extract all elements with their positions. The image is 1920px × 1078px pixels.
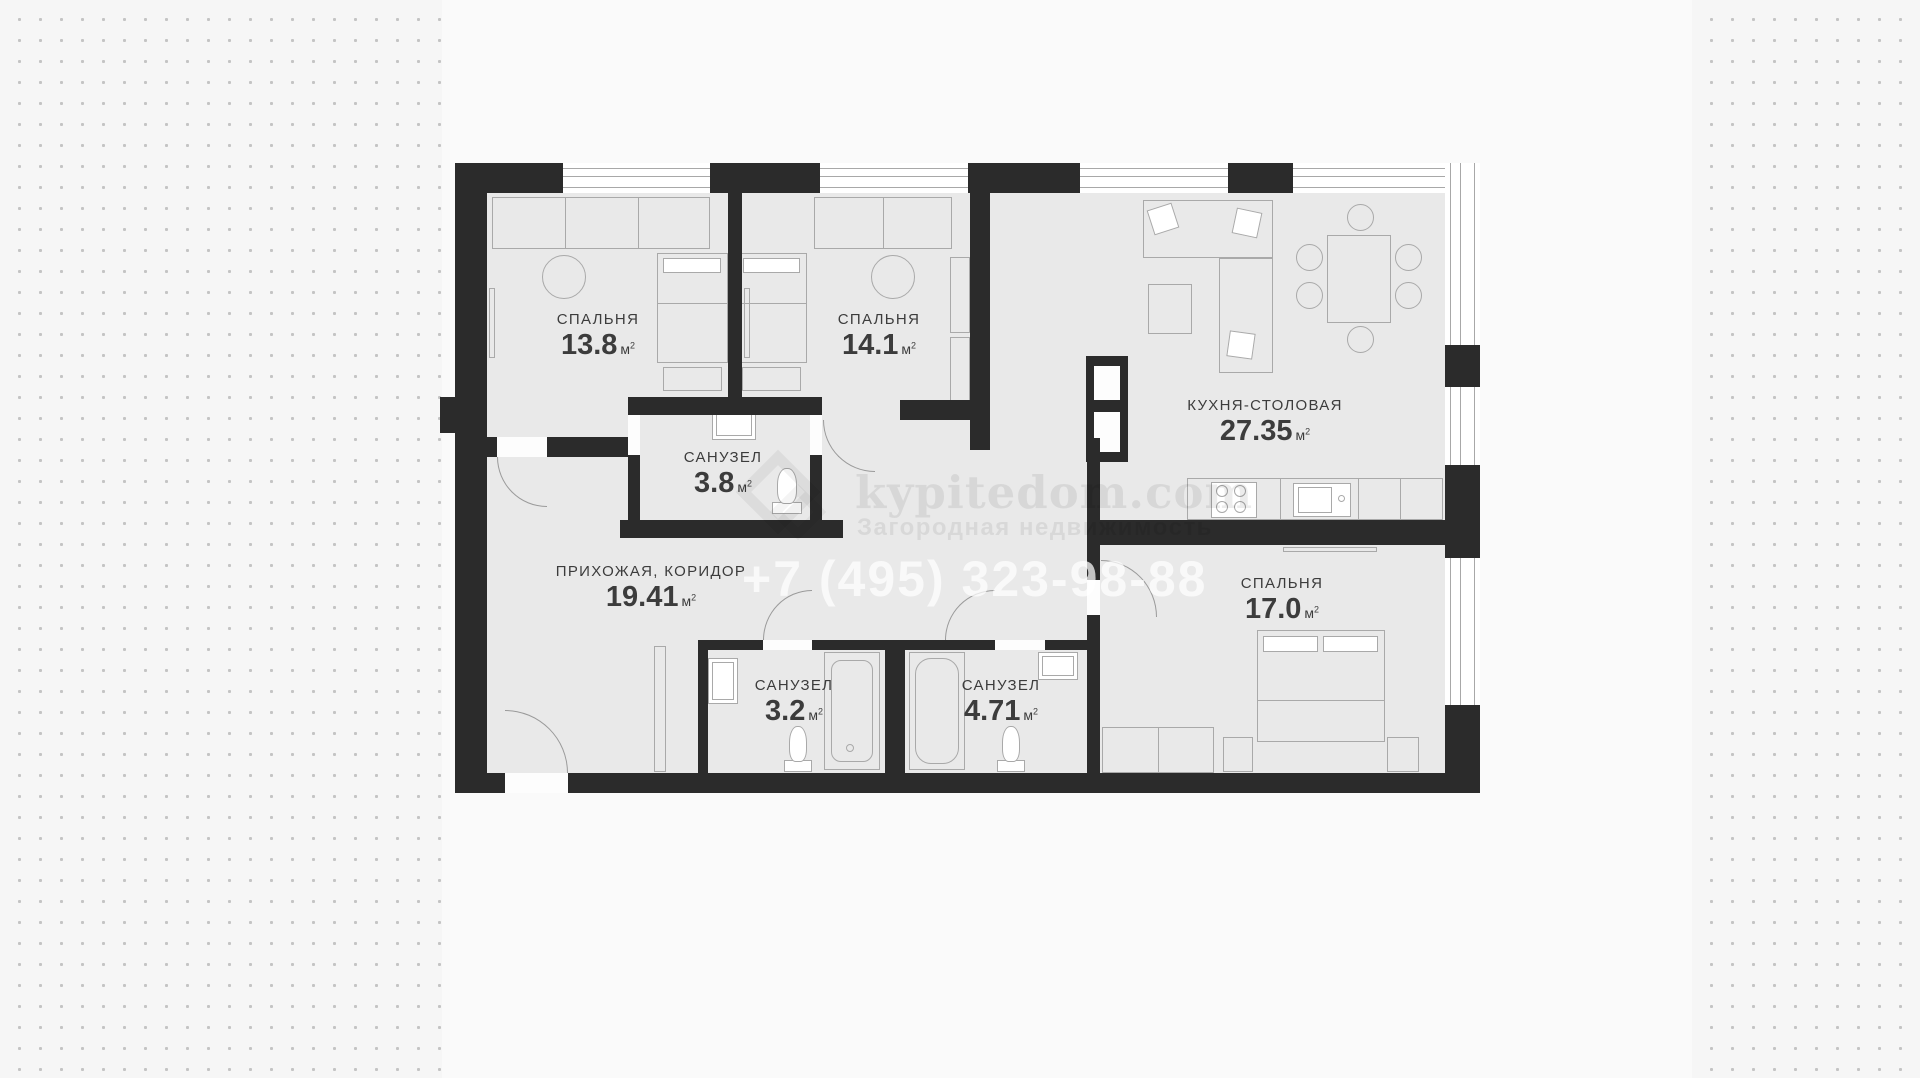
room-area-unit: м2: [808, 707, 823, 723]
wall-segment: [455, 773, 1480, 793]
room-area: 14.1м2: [719, 331, 1039, 360]
counter-divider: [1358, 478, 1359, 520]
wardrobe-divider: [638, 197, 639, 249]
pillow-symbol: [743, 258, 800, 273]
blanket-line: [1257, 700, 1385, 701]
toilet-bowl-symbol: [1002, 726, 1020, 762]
room-name: СПАЛЬНЯ: [719, 312, 1039, 327]
wall-segment: [1445, 705, 1480, 793]
window: [1080, 163, 1228, 193]
watermark-brand: kypitedom.com: [855, 466, 1253, 519]
watermark-tagline: Загородная недвижимость: [857, 514, 1213, 542]
nightstand-symbol: [1387, 737, 1419, 772]
wall-segment: [728, 193, 742, 402]
pillow-symbol: [1323, 636, 1378, 652]
wall-segment: [1445, 465, 1480, 558]
room-label-bedroom-14: СПАЛЬНЯ 14.1м2: [719, 312, 1039, 360]
wall-segment: [440, 397, 487, 433]
room-area-value: 4.71: [964, 695, 1020, 727]
chair-symbol: [871, 255, 915, 299]
room-label-bathroom-38: САНУЗЕЛ 3.8м2: [563, 450, 883, 498]
dotted-pattern-left: [0, 0, 442, 1078]
bed-bench-symbol: [663, 367, 722, 391]
chair-symbol: [1395, 244, 1422, 271]
wall-segment: [710, 163, 820, 193]
window: [1293, 163, 1445, 193]
chair-symbol: [542, 255, 586, 299]
chair-symbol: [1296, 282, 1323, 309]
wall-segment: [628, 397, 822, 415]
room-area-value: 14.1: [842, 329, 898, 361]
pillow-symbol: [663, 258, 721, 273]
room-area-value: 3.8: [694, 467, 734, 499]
door-opening: [628, 415, 640, 455]
chair-symbol: [1347, 326, 1374, 353]
desk-divider: [883, 197, 884, 249]
chair-symbol: [1296, 244, 1323, 271]
room-name: САНУЗЕЛ: [841, 678, 1161, 693]
dining-table-symbol: [1327, 235, 1391, 323]
room-area-unit: м2: [1295, 427, 1310, 443]
room-area-value: 27.35: [1220, 415, 1293, 447]
pillow-symbol: [1232, 208, 1263, 239]
floorplan-canvas: СПАЛЬНЯ 13.8м2 СПАЛЬНЯ 14.1м2 КУХНЯ-СТОЛ…: [0, 0, 1920, 1078]
room-label-bathroom-471: САНУЗЕЛ 4.71м2: [841, 678, 1161, 726]
room-area-value: 3.2: [765, 695, 805, 727]
door-opening: [497, 437, 547, 457]
watermark-phone: +7 (495) 323-98-88: [742, 550, 1207, 608]
wardrobe-divider: [565, 197, 566, 249]
room-area-value: 13.8: [561, 329, 617, 361]
room-area: 3.8м2: [563, 469, 883, 498]
room-label-kitchen: КУХНЯ-СТОЛОВАЯ 27.35м2: [1105, 398, 1425, 446]
room-area: 27.35м2: [1105, 417, 1425, 446]
window: [820, 163, 968, 193]
room-area-unit: м2: [681, 593, 696, 609]
wall-segment: [1445, 345, 1480, 387]
chair-symbol: [1347, 204, 1374, 231]
door-opening: [995, 640, 1045, 650]
faucet-symbol: [1338, 495, 1345, 502]
room-area-unit: м2: [1304, 605, 1319, 621]
pillow-symbol: [1226, 330, 1255, 359]
wardrobe-symbol: [492, 197, 710, 249]
shaft-slot: [1094, 366, 1120, 400]
counter-divider: [1400, 478, 1401, 520]
room-area-unit: м2: [620, 341, 635, 357]
room-name: САНУЗЕЛ: [563, 450, 883, 465]
radiator-symbol: [1283, 547, 1377, 552]
door-opening: [763, 640, 812, 650]
room-label-bedroom-13: СПАЛЬНЯ 13.8м2: [438, 312, 758, 360]
toilet-bowl-symbol: [789, 726, 807, 762]
room-area-unit: м2: [1023, 707, 1038, 723]
room-area-value: 19.41: [606, 581, 679, 613]
room-area-unit: м2: [901, 341, 916, 357]
kitchen-sink-basin: [1298, 487, 1332, 513]
room-name: КУХНЯ-СТОЛОВАЯ: [1105, 398, 1425, 413]
drain-symbol: [846, 744, 854, 752]
dotted-pattern-right: [1692, 0, 1920, 1078]
room-area: 13.8м2: [438, 331, 758, 360]
sink-basin: [1042, 656, 1074, 676]
wall-segment: [968, 163, 1080, 193]
door-opening: [810, 415, 822, 455]
entrance-door-opening: [505, 773, 568, 793]
counter-divider: [1280, 478, 1281, 520]
dresser-divider: [1158, 727, 1159, 773]
blanket-line: [657, 303, 728, 304]
room-area-value: 17.0: [1245, 593, 1301, 625]
wall-segment: [1228, 163, 1293, 193]
sink-basin: [716, 414, 752, 436]
coffee-table-symbol: [1148, 284, 1192, 334]
chair-symbol: [1395, 282, 1422, 309]
bed-bench-symbol: [742, 367, 801, 391]
room-area: 4.71м2: [841, 697, 1161, 726]
pillow-symbol: [1263, 636, 1318, 652]
window: [563, 163, 710, 193]
room-name: СПАЛЬНЯ: [438, 312, 758, 327]
wall-segment: [455, 163, 487, 773]
nightstand-symbol: [1223, 737, 1253, 772]
